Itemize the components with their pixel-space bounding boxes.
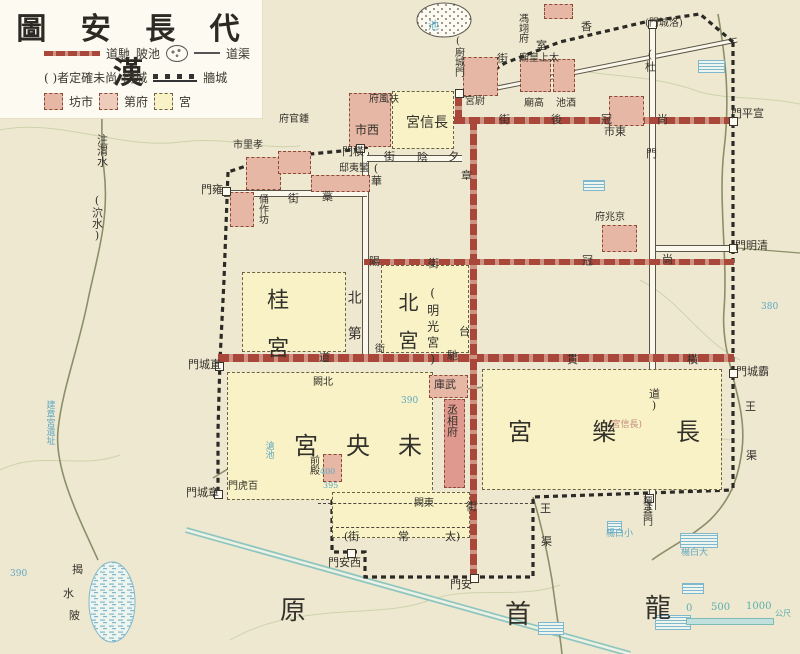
- site-dongque: 闕東: [414, 499, 434, 510]
- street-gao-2: 藁: [322, 191, 333, 203]
- street-shangguan-1: 冠: [582, 255, 593, 267]
- street-taichang-2: 常: [398, 531, 409, 543]
- village-mark-3: [680, 533, 718, 548]
- street-gao-1: 街: [288, 193, 299, 205]
- street-xiangshi-2: 室: [536, 40, 547, 52]
- palace-bei-label: 北宮: [396, 292, 417, 368]
- street-zhangtai-2: 台: [459, 326, 470, 338]
- site-wuku: 庫武: [434, 379, 456, 391]
- plateau-longshou-1: 原: [280, 598, 306, 625]
- ruin-jianzhanggong: 建章宮遺址: [44, 400, 53, 445]
- gate-hengmen: 門橫: [342, 146, 364, 158]
- office-jingzhaofu: 府兆京: [595, 213, 625, 224]
- legend-row-roads: 道馳陂池道渠: [44, 44, 250, 62]
- scale-unit: 公尺: [775, 610, 791, 618]
- village-mark-5: [538, 622, 564, 635]
- gate-square-chucheng: [455, 89, 464, 98]
- street-yang-2: 街: [428, 258, 439, 270]
- pond-jieshuibei-2: 水: [63, 588, 74, 600]
- office-fufengfu: 府風扶: [369, 95, 399, 106]
- legend-label: 牆城: [203, 69, 227, 86]
- street-xiangshi-1: 香: [581, 21, 592, 33]
- street-shangguan-2: 尚: [662, 254, 673, 266]
- legend-label: 陂池: [136, 45, 160, 62]
- road-taichang-street: [336, 527, 470, 528]
- canal-wangqu-e1: 王: [745, 401, 756, 413]
- manyidi-box: [311, 175, 370, 192]
- xiangshi-street: [462, 40, 737, 95]
- modern-road: [186, 530, 630, 654]
- gate-baihu: 門虎百: [228, 482, 258, 493]
- village-dabaiyang: 楊白大: [681, 549, 708, 558]
- mansion-box-icon: [99, 93, 118, 110]
- chidao-road-line-icon: [44, 51, 100, 56]
- street-shangguanhou-4: 尚: [657, 114, 668, 126]
- street-xiyin-2: 陰: [417, 152, 428, 164]
- street-yang-1: 陽: [369, 256, 380, 268]
- legend-label: 宮: [179, 93, 191, 110]
- pond-symbol-icon: [166, 45, 188, 62]
- plateau-longshou-2: 首: [505, 602, 531, 629]
- site-beique: 闕北: [313, 378, 333, 389]
- han-changan-map: 門橫(廚城門(門城洛)門平宣門明清門城霸門雍門城直門城章門安西門安覆盎門門虎百(…: [0, 0, 800, 654]
- contour-395: 395: [323, 482, 338, 490]
- street-hua: (華: [370, 162, 382, 186]
- gate-zhangcheng: 門城章: [186, 487, 219, 499]
- gate-bacheng: 門城霸: [736, 366, 769, 378]
- yongzuofang-box: [230, 192, 254, 227]
- road-chucheng-gate: [455, 95, 462, 121]
- palace-changxin-label: 宮信長: [406, 116, 448, 131]
- gate-anmen: 門安: [450, 579, 472, 591]
- street-shangguanhou-1: 街: [499, 114, 510, 126]
- village-mark-1: [698, 60, 725, 73]
- street-xiyin-1: 街: [384, 151, 395, 163]
- palace-gui-label: 桂宮: [264, 288, 287, 384]
- road-shangguanhou-street: [454, 117, 734, 124]
- legend-row-walls: ( )者定確未尚門城牆城: [44, 68, 227, 86]
- gate-square-yongmen: [222, 187, 231, 196]
- street-anmen-jie: 街: [466, 501, 477, 513]
- site-jiuchi: 池酒: [556, 99, 576, 110]
- gate-luocheng: (門城洛): [645, 19, 683, 30]
- street-taichang-3: 太): [445, 531, 460, 543]
- gate-du-2: 門: [646, 148, 657, 160]
- street-taichang-1: (街: [344, 531, 359, 543]
- site-gaomiao: 廟高: [524, 99, 544, 110]
- gate-fuang: 覆盎門: [640, 496, 651, 526]
- legend-panel: 圖 安 長 代 漢 道馳陂池道渠 ( )者定確未尚門城牆城 坊市第府宮: [0, 0, 262, 118]
- village-mark-8: [682, 583, 704, 594]
- road-shangguan-street: [364, 259, 734, 265]
- pond-cangchi-label: 滄池: [263, 441, 272, 459]
- office-fengyifu: 馮翊府: [516, 13, 527, 43]
- jingzhaofu-box: [602, 225, 637, 252]
- scale-bar: [686, 618, 774, 625]
- scale-tick-1000: 1000: [746, 602, 771, 613]
- village-mark-7: [583, 180, 605, 191]
- scale-tick-500: 500: [711, 603, 730, 614]
- site-taishanghuangmiao: 廟皇上太: [519, 54, 559, 65]
- palace-mingguang-label: (明光宮): [426, 286, 439, 370]
- zhongguanfu-box: [278, 151, 311, 174]
- street-dao: 道): [648, 388, 660, 412]
- area-beidi-label: 北第: [346, 290, 361, 362]
- gate-zhicheng: 門城直: [188, 359, 221, 371]
- street-chidao-3: 貫: [567, 354, 578, 366]
- street-zhangtai-1: 章: [461, 170, 472, 182]
- canal-wangqu-s2: 渠: [541, 536, 552, 548]
- gate-qingming: 門明清: [735, 240, 768, 252]
- road-qingming-street: [651, 245, 733, 252]
- gate-chucheng: (廚城門: [452, 36, 463, 77]
- plateau-longshou-3: 龍: [645, 596, 671, 623]
- gate-xuanping: 門平宣: [731, 108, 764, 120]
- contour-380: 380: [761, 303, 778, 312]
- contour-400: 400: [320, 468, 335, 476]
- palace-changle-label: 宮樂長: [508, 420, 760, 445]
- xiaoli-market-box: [246, 157, 281, 190]
- legend-row-areas: 坊市第府宮: [44, 92, 191, 110]
- pond-jieshuibei-3: 陂: [69, 610, 80, 622]
- palace-weiyang-label: 宮央未: [294, 434, 450, 459]
- village-xiaobaiyang: 楊白小: [606, 530, 633, 539]
- weigong-box: [463, 57, 498, 96]
- street-chidao-1: 道: [319, 352, 330, 364]
- legend-label: ( )者定確未尚: [44, 69, 117, 86]
- pond-jieshuibei-1: 揭: [72, 564, 83, 576]
- street-v-jie: 街: [375, 345, 385, 356]
- palace-box-icon: [154, 93, 173, 110]
- river-zhuweishui: 注渭水: [96, 134, 108, 167]
- pond-chi-label: 池: [428, 20, 439, 32]
- office-zhongguanfu: 府官鍾: [279, 115, 309, 126]
- street-shangguanhou-3: 冠: [601, 114, 612, 126]
- street-xiangshi-3: 街: [497, 53, 508, 65]
- market-box-icon: [44, 93, 63, 110]
- gate-du-1: (杜: [644, 48, 656, 72]
- street-chidao-2: 馳: [447, 350, 458, 362]
- market-east: 市東: [604, 126, 626, 138]
- street-chidao-4: 橫: [687, 354, 698, 366]
- market-west: 市西: [355, 124, 379, 137]
- site-manyidi: 邸夷蠻: [339, 164, 369, 175]
- river-xueshui: (泬水): [91, 194, 103, 242]
- legend-label: 道馳: [106, 45, 130, 62]
- jieshuibei-pond: [89, 562, 135, 642]
- market-xiaoli: 市里孝: [233, 141, 263, 152]
- site-yongzuofang: 俑作坊: [256, 194, 267, 224]
- legend-label: 坊市: [69, 93, 93, 110]
- canal-wangqu-s1: 王: [540, 503, 551, 515]
- palace-gui: [242, 272, 346, 352]
- fengyifu-box: [544, 4, 573, 19]
- street-xiyin-3: 夕: [448, 151, 459, 163]
- gate-xian: 門安西: [328, 557, 361, 569]
- wall-symbol-icon: [153, 72, 197, 82]
- legend-label: 門城: [123, 69, 147, 86]
- canal-line-icon: [194, 52, 220, 54]
- contour-390-b: 390: [10, 570, 27, 579]
- street-shangguanhou-2: 後: [551, 114, 562, 126]
- gate-yongmen: 門雍: [201, 184, 223, 196]
- site-weigong: 宮尉: [465, 97, 485, 108]
- legend-label: 道渠: [226, 45, 250, 62]
- scale-tick-0: 0: [686, 604, 692, 615]
- contour-390-a: 390: [401, 397, 418, 406]
- east-market-box: [609, 96, 644, 126]
- north-pond: [417, 3, 471, 37]
- canal-wangqu-e2: 渠: [746, 450, 757, 462]
- legend-label: 第府: [124, 93, 148, 110]
